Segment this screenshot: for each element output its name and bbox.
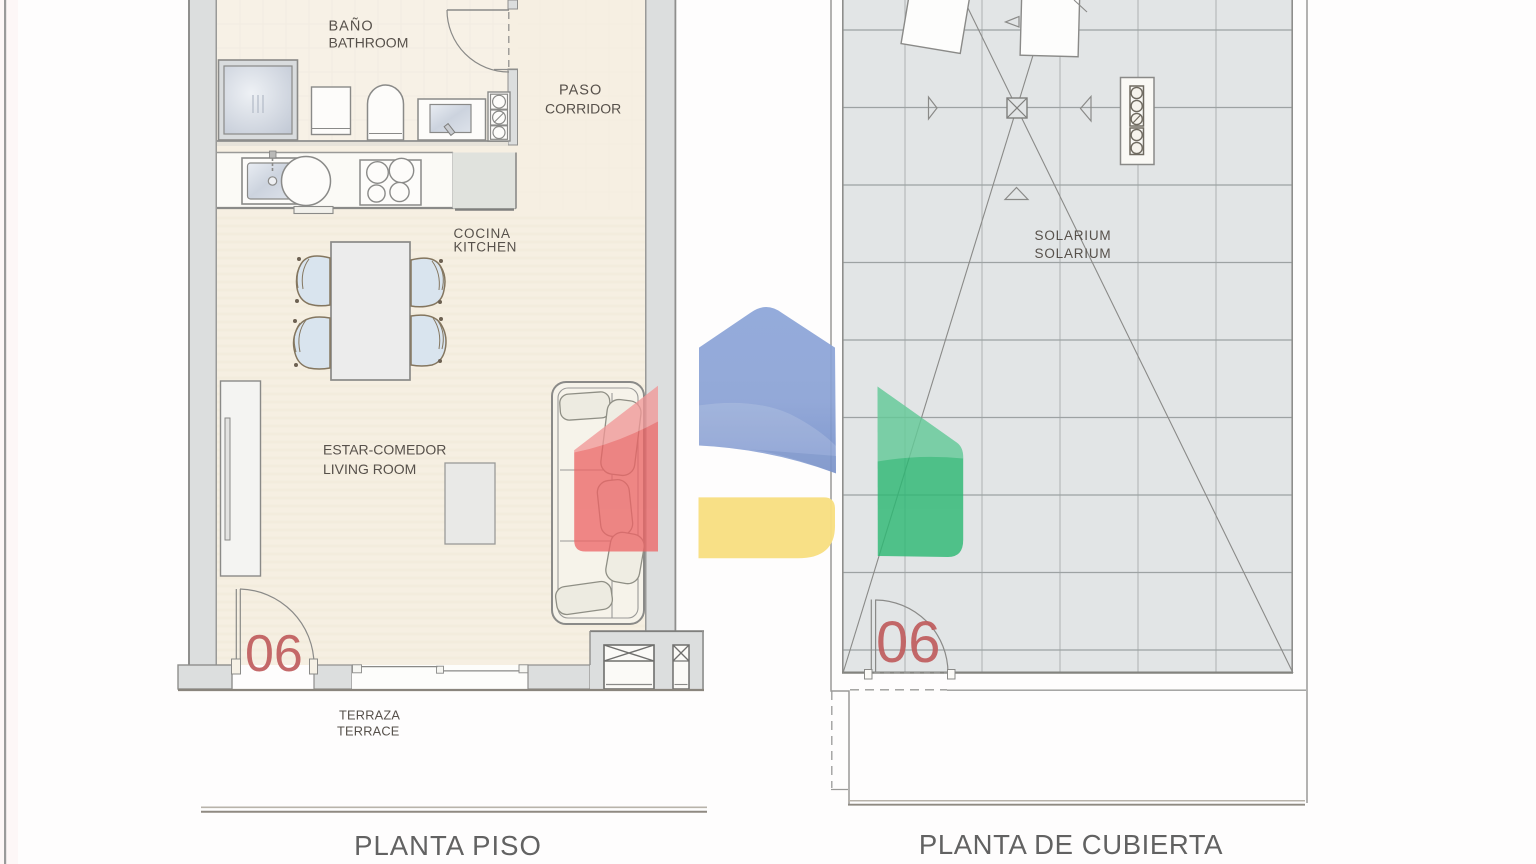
svg-text:TERRAZA: TERRAZA <box>339 708 400 723</box>
svg-text:KITCHEN: KITCHEN <box>454 240 517 255</box>
svg-text:BATHROOM: BATHROOM <box>329 35 409 51</box>
svg-text:06: 06 <box>876 610 941 675</box>
svg-text:06: 06 <box>245 625 303 683</box>
svg-text:SOLARIUM: SOLARIUM <box>1035 246 1112 261</box>
svg-text:SOLARIUM: SOLARIUM <box>1035 228 1112 243</box>
svg-text:LIVING ROOM: LIVING ROOM <box>323 461 416 477</box>
svg-text:ESTAR-COMEDOR: ESTAR-COMEDOR <box>323 442 446 458</box>
svg-text:PLANTA PISO: PLANTA PISO <box>354 830 542 861</box>
svg-text:PASO: PASO <box>559 83 602 99</box>
svg-text:TERRACE: TERRACE <box>337 724 400 739</box>
svg-text:PLANTA DE CUBIERTA: PLANTA DE CUBIERTA <box>919 829 1223 860</box>
svg-text:CORRIDOR: CORRIDOR <box>545 101 621 117</box>
svg-text:BAÑO: BAÑO <box>329 18 374 35</box>
